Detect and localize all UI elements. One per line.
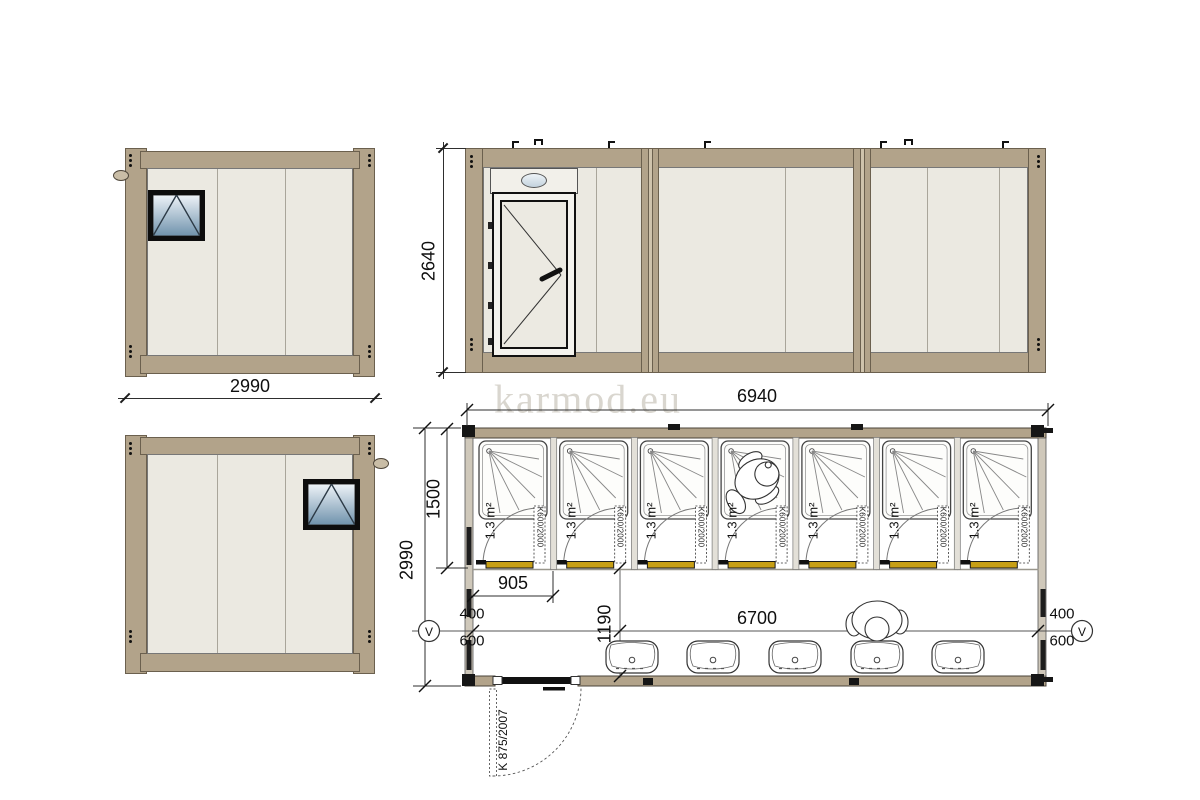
dim-corridor-width: 1190	[595, 605, 616, 644]
stall-door-label: K600/2000	[616, 507, 625, 548]
stall-door-label: K600/2000	[778, 507, 787, 548]
panel-seam	[217, 169, 218, 355]
vent-size-bottom-left: 600	[459, 633, 484, 650]
handle-knob	[373, 458, 389, 469]
stall-area-label: 1.3 m²	[725, 503, 740, 540]
bolt-dots	[129, 345, 132, 348]
urinals	[606, 641, 984, 673]
bolt-dots	[129, 154, 132, 157]
corner-post	[353, 435, 375, 674]
top-rail	[465, 148, 1046, 168]
bottom-rail	[140, 355, 360, 374]
bolt-dots	[1037, 155, 1040, 158]
bolt-dots	[129, 630, 132, 633]
bolt-dots	[368, 442, 371, 445]
vent-size-bottom-right: 600	[1049, 633, 1074, 650]
panel-seam	[785, 168, 786, 352]
corner-post	[465, 148, 483, 373]
dim-interior-length: 6700	[737, 608, 777, 629]
module-joint-post	[641, 148, 659, 373]
stall-door-label: K600/2000	[697, 507, 706, 548]
bolt-dots	[470, 338, 473, 341]
window-glass	[308, 484, 355, 525]
dimension-label-height: 2640	[419, 241, 440, 281]
panel-seam	[285, 455, 286, 653]
vent-size-top-left: 400	[459, 606, 484, 623]
panel-seam	[999, 168, 1000, 352]
bolt-dots	[129, 442, 132, 445]
side-elevation-top: 2990	[0, 0, 410, 420]
stall-door-label: K600/2000	[858, 507, 867, 548]
tilt-window	[303, 479, 360, 530]
dim-total-depth: 2990	[397, 540, 418, 580]
bolt-dots	[368, 630, 371, 633]
roof-tab	[534, 139, 543, 145]
door-hinge	[488, 338, 492, 345]
dim-total-width: 6940	[737, 386, 777, 407]
door-hinge	[488, 222, 492, 229]
bolt-dots	[368, 154, 371, 157]
dimension-line	[118, 398, 382, 399]
dim-shower-depth: 1500	[424, 479, 445, 519]
module-joint-post	[853, 148, 871, 373]
bolt-dots	[1037, 338, 1040, 341]
bolt-dots	[368, 345, 371, 348]
door-hinge	[488, 262, 492, 269]
bottom-rail	[140, 653, 360, 672]
vent-symbol-letter-left: V	[425, 625, 433, 639]
handle-knob	[113, 170, 129, 181]
dimension-label-width: 2990	[230, 376, 270, 397]
dimension-line	[443, 142, 444, 379]
entry-door-label: K 875/2007	[496, 709, 510, 770]
corner-post	[125, 435, 147, 674]
corner-post	[125, 148, 147, 377]
tilt-window	[148, 190, 205, 241]
door-handle	[542, 270, 560, 279]
stall-door-label: K600/2000	[939, 507, 948, 548]
panel-seam	[596, 168, 597, 352]
door-lamp	[521, 173, 547, 188]
technical-drawing-sheet: 2990	[0, 0, 1200, 800]
panel-seam	[927, 168, 928, 352]
stall-area-label: 1.3 m²	[887, 503, 902, 540]
stall-area-label: 1.3 m²	[483, 503, 498, 540]
panel-seam	[285, 169, 286, 355]
stall-door-label: K600/2000	[1020, 507, 1029, 548]
top-rail	[140, 151, 360, 169]
stall-area-label: 1.3 m²	[564, 503, 579, 540]
person-at-urinal	[846, 601, 908, 641]
door-hinge	[488, 302, 492, 309]
window-glass	[153, 195, 200, 236]
door-swing-marks	[500, 200, 568, 349]
vent-symbol-letter-right: V	[1078, 625, 1086, 639]
top-rail	[140, 437, 360, 455]
corner-post	[353, 148, 375, 377]
bolt-dots	[470, 155, 473, 158]
stall-door-label: K600/2000	[536, 507, 545, 548]
stall-area-label: 1.3 m²	[967, 503, 982, 540]
vent-size-top-right: 400	[1049, 606, 1074, 623]
plan-top-wall	[465, 428, 1046, 438]
side-elevation-bottom	[0, 420, 410, 690]
front-elevation: 2640	[410, 0, 1200, 395]
panel-seam	[217, 455, 218, 653]
dim-stall-width: 905	[498, 573, 528, 594]
stall-area-label: 1.3 m²	[806, 503, 821, 540]
stall-area-label: 1.3 m²	[644, 503, 659, 540]
roof-tab	[904, 139, 913, 145]
